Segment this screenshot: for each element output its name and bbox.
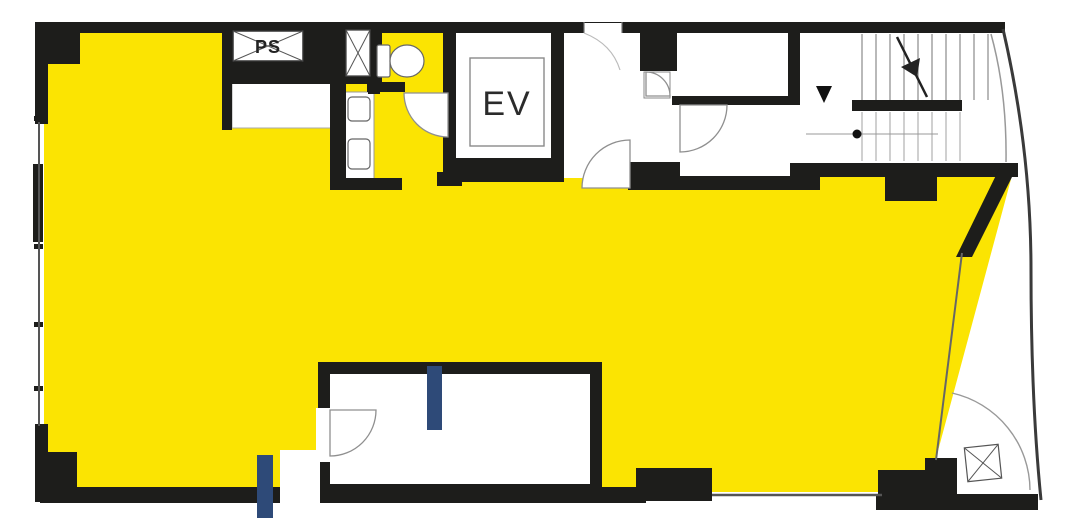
elevator-bottom-wall: [448, 158, 564, 182]
toilet-tank-icon: [377, 45, 390, 77]
toilet-bottom-wall: [367, 82, 405, 92]
wall-segment: [35, 22, 48, 124]
wall-segment: [35, 22, 1005, 33]
wall-segment: [330, 178, 402, 190]
toilet-bowl-icon: [390, 45, 424, 77]
floorplan-drawing: PS EV: [0, 0, 1066, 523]
pipe-shaft-label: PS: [255, 37, 281, 57]
corridor-top-wall: [672, 96, 799, 105]
wash-basin-icon: [348, 97, 370, 121]
wall-segment: [788, 28, 800, 105]
column: [636, 468, 712, 501]
door-bar: [427, 366, 442, 430]
stair-bottom-wall: [790, 163, 1018, 177]
wall-segment: [222, 82, 232, 130]
column: [640, 30, 677, 71]
floorplan: PS EV: [0, 0, 1066, 523]
column: [885, 175, 937, 201]
wall-opening: [280, 450, 320, 503]
stair-start-dot: [853, 130, 862, 139]
wall-segment: [330, 82, 346, 190]
wall-segment: [876, 494, 1038, 510]
closet-counter: [232, 82, 332, 128]
wall-segment: [628, 162, 680, 178]
elevator-label: EV: [482, 85, 531, 123]
door-bar: [257, 455, 273, 518]
stair-landing-wall: [852, 100, 962, 111]
stair-area: [798, 33, 1016, 164]
entrance-equipment-box: [964, 444, 1001, 481]
balcony-door-opening: [584, 23, 622, 33]
elevator-right-wall: [551, 22, 564, 162]
wash-basin-icon: [348, 139, 370, 169]
window-tick: [34, 116, 43, 121]
hall-bottom-wall: [628, 176, 816, 190]
